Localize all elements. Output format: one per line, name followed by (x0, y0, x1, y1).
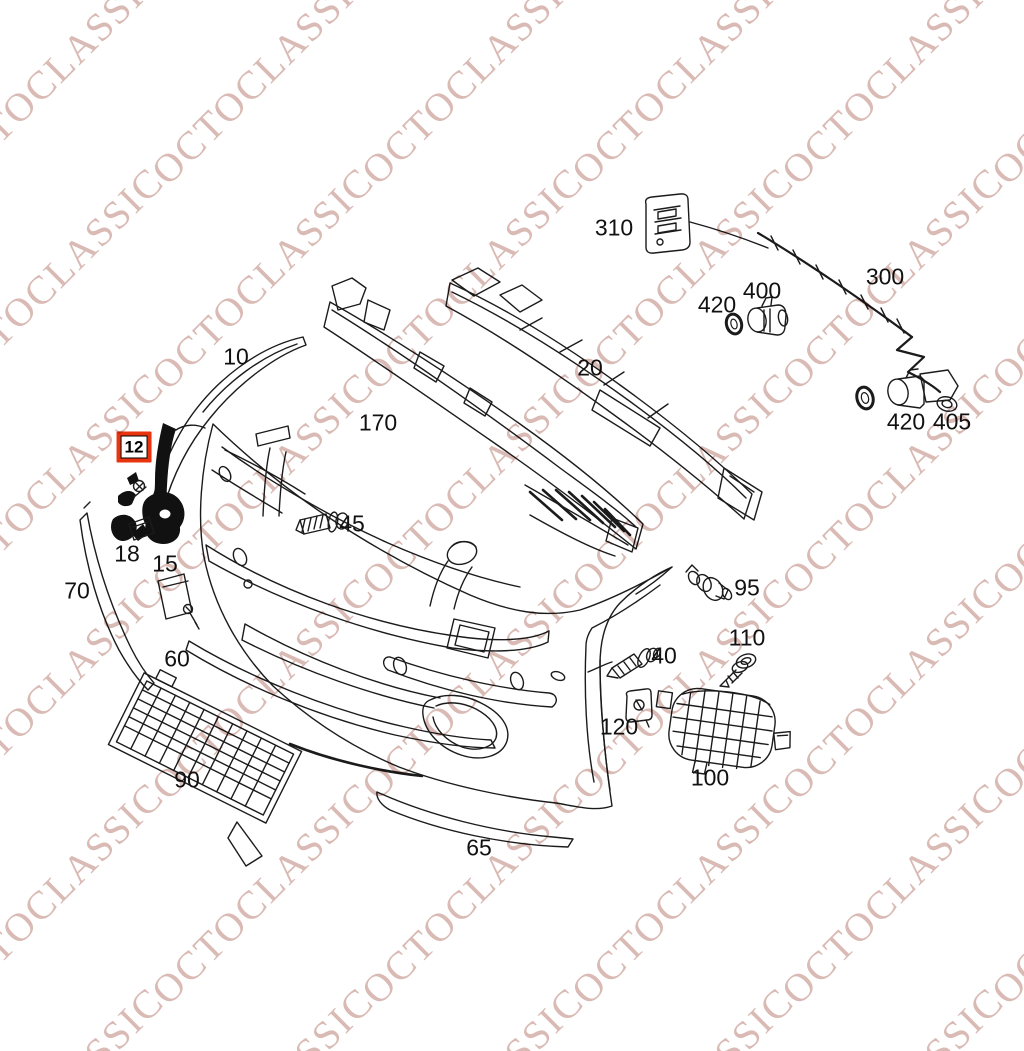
part-label-40: 40 (651, 645, 677, 668)
part-label-300: 300 (866, 266, 904, 289)
part-label-90: 90 (174, 769, 200, 792)
part-label-10: 10 (223, 346, 249, 369)
part-label-12-text: 12 (121, 436, 148, 459)
part-label-70: 70 (64, 580, 90, 603)
part-label-95: 95 (734, 577, 760, 600)
part-label-420-lower: 420 (887, 411, 925, 434)
part-label-310: 310 (595, 217, 633, 240)
part-label-400: 400 (743, 280, 781, 303)
part-label-15: 15 (152, 553, 178, 576)
part-label-100: 100 (691, 767, 729, 790)
parts-diagram-page: 1210170204518157060906595401101201003103… (0, 0, 1024, 1051)
part-label-170: 170 (359, 412, 397, 435)
part-label-12: 12 (117, 432, 152, 463)
part-label-405: 405 (933, 411, 971, 434)
part-label-120: 120 (600, 716, 638, 739)
part-label-45: 45 (339, 513, 365, 536)
part-label-110: 110 (729, 627, 766, 650)
callout-layer: 1210170204518157060906595401101201003103… (0, 0, 1024, 1051)
part-label-60: 60 (164, 648, 190, 671)
part-label-18: 18 (114, 543, 140, 566)
part-label-20: 20 (577, 357, 603, 380)
part-label-420-upper: 420 (698, 294, 736, 317)
part-label-65: 65 (466, 837, 492, 860)
